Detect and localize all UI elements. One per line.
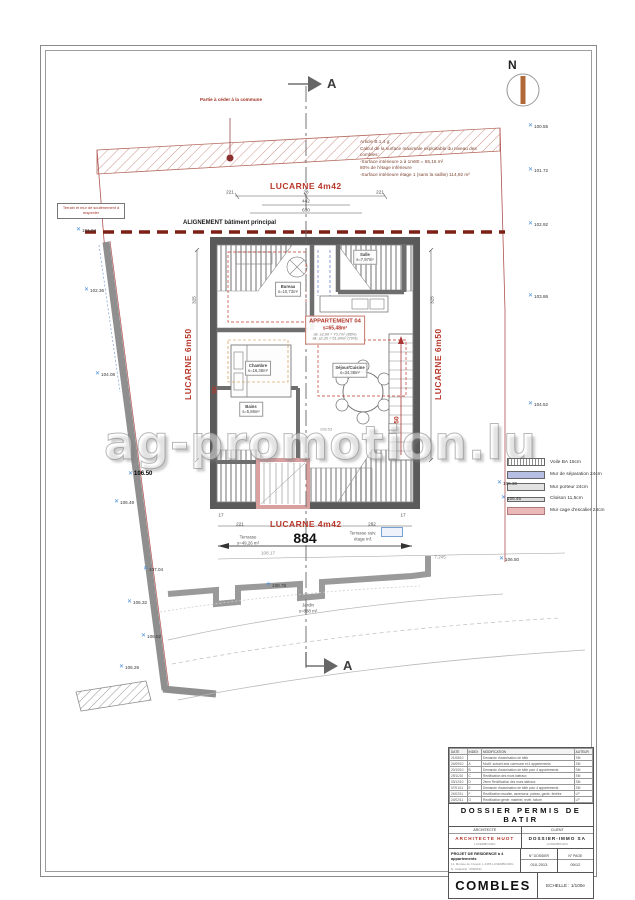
elevation-marker: ✕106.50 [499, 556, 519, 562]
dimension-text: 630 [302, 208, 310, 213]
survey-cross-icon: ✕ [497, 480, 502, 486]
article-note-line: -Surface intérieure étage 1 (sans la sai… [360, 172, 502, 179]
dimension-text: 221 [226, 190, 234, 195]
page-number-cell: N° PAGE09/12 [558, 849, 593, 872]
revision-cell: LP [574, 797, 592, 803]
survey-cross-icon: ✕ [95, 371, 100, 377]
legend-item: Voile BA 15cm [507, 458, 605, 466]
elevation-marker: ✕102.36 [84, 287, 104, 293]
watermark: ag-promotion.lu [104, 416, 537, 470]
scale-label: ECHELLE : 1/100e [538, 883, 593, 888]
legend-item: Mur de séparation 24cm [507, 471, 605, 479]
north-label: N [508, 58, 517, 72]
survey-star-icon: ✳ [266, 582, 271, 588]
legend-label: Voile BA 15cm [550, 460, 581, 465]
survey-cross-icon: ✕ [528, 293, 533, 299]
drawing-sheet: ag-promotion.lu N A A Partie à céder à l… [0, 0, 635, 900]
legend-item: Cloison 11,5cm [507, 496, 605, 503]
dimension-text: 7.245 [434, 555, 446, 560]
survey-cross-icon: ✕ [499, 556, 504, 562]
elevation-marker: ✕104.08 [95, 371, 115, 377]
dimension-text: 442 [302, 199, 310, 204]
legend-label: Mur de séparation 24cm [550, 472, 602, 477]
client-cell: CLIENT DOSSIER-IMMO SA LUXEMBOURG [522, 827, 594, 848]
legend-label: Mur porteur 24cm [550, 485, 588, 490]
alignment-label: ALIGNEMENT bâtiment principal [183, 220, 276, 226]
revision-table: DATEINDEXMODIFICATIONAUTEUR21/08/10Deman… [449, 748, 593, 803]
legend-swatch-hatch [507, 458, 545, 466]
terrasse-right-label: Terrasse suiv.étage inf. [350, 531, 377, 542]
fifty-marker-right: 50 [394, 416, 401, 423]
room-label-bains: Bainss=5,86m² [239, 402, 263, 417]
survey-cross-icon: ✕ [528, 123, 533, 129]
elevation-marker: ✕102.92 [528, 221, 548, 227]
elevation-marker: ✕106.49 [114, 499, 134, 505]
elevation-marker: ✕107.04 [143, 566, 163, 572]
lucarne-left-label: LUCARNE 6m50 [183, 328, 193, 400]
dimension-text: 325 [192, 296, 197, 304]
title-block: DATEINDEXMODIFICATIONAUTEUR21/08/10Deman… [448, 747, 594, 899]
revision-cell: 24/02/11 [450, 797, 468, 803]
article-note: Article B.1.4 g:Calcul de la surface max… [360, 139, 502, 178]
legend-item: Mur cage d'escalier 24cm [507, 507, 605, 515]
elevation-marker: ✕106.50 [128, 471, 152, 477]
elevation-marker: ✕106.30 [497, 480, 517, 486]
dimension-text: 17 [218, 513, 223, 518]
legend: Voile BA 15cmMur de séparation 24cmMur p… [507, 458, 605, 519]
lucarne-bottom-label: LUCARNE 4m42 [270, 519, 342, 529]
lucarne-right-label: LUCARNE 6m50 [433, 328, 443, 400]
apartment-label: APPARTEMENT 04 s=65,48m² alt. ≥2,00 = 70… [305, 316, 365, 345]
north-arrow [507, 74, 539, 106]
room-label-s-jour-cuisine: Séjour/Cuisines=34,38m² [332, 363, 367, 378]
dossier-number-cell: N° DOSSIER010-2013 [521, 849, 557, 872]
article-note-line: combles: [360, 152, 502, 159]
elevation-marker: ✳108.78 [266, 582, 286, 588]
dimension-text: 108.17 [261, 551, 275, 556]
survey-cross-icon: ✕ [76, 227, 81, 233]
titleblock-title: DOSSIER PERMIS DE BATIR [449, 803, 593, 827]
dimension-text: 17 [400, 513, 405, 518]
architect-name: ARCHITECTE HUOT [449, 836, 521, 841]
terrasse-left-label: Terrasses=49,26 m² [237, 535, 259, 546]
section-letter-top: A [327, 76, 336, 91]
survey-cross-icon: ✕ [128, 471, 133, 477]
elevation-marker: ✕101.72 [528, 167, 548, 173]
article-note-line: Article B.1.4 g: [360, 139, 502, 146]
survey-cross-icon: ✕ [528, 221, 533, 227]
room-label-chambre: Chambres=16,38m² [245, 361, 271, 376]
article-note-line: Calcul de la surface maximale exploitabl… [360, 146, 502, 153]
jardin-label: Jardins=888 m² [299, 603, 317, 614]
survey-cross-icon: ✕ [528, 401, 533, 407]
elevation-marker: ✕104.52 [528, 401, 548, 407]
legend-swatch-blue [507, 471, 545, 479]
revision-cell: G [467, 797, 481, 803]
retaining-wall-note: Terrain et mur de soutènement à respecte… [57, 203, 125, 219]
survey-cross-icon: ✕ [114, 499, 119, 505]
legend-item: Mur porteur 24cm [507, 483, 605, 491]
fifty-marker-left: 50 [212, 386, 219, 393]
dimension-text: 884 [293, 530, 316, 546]
legend-swatch-pink [507, 507, 545, 515]
dimension-text: 262 [368, 522, 376, 527]
legend-label: Mur cage d'escalier 24cm [550, 508, 605, 513]
terrace-level: 108.53 [320, 427, 332, 432]
survey-cross-icon: ✕ [528, 167, 533, 173]
elevation-marker: ✕106.52 [141, 633, 161, 639]
site-linework [76, 118, 585, 711]
elevation-marker: ✕106.26 [119, 664, 139, 670]
survey-cross-icon: ✕ [119, 664, 124, 670]
cession-note: Partie à céder à la commune [196, 97, 266, 103]
client-name: DOSSIER-IMMO SA [522, 836, 594, 841]
survey-cross-icon: ✕ [127, 599, 132, 605]
elevation-marker: ✕101.04 [76, 227, 96, 233]
revision-row: 24/02/11GRectification génér. matériel, … [450, 797, 593, 803]
sheet-name: COMBLES [449, 873, 538, 898]
survey-cross-icon: ✕ [143, 566, 148, 572]
dimension-text: 221 [376, 190, 384, 195]
architect-cell: ARCHITECTE ARCHITECTE HUOT LUXEMBOURG [449, 827, 522, 848]
elevation-marker: ✕100.55 [528, 123, 548, 129]
dimension-text: 325 [430, 296, 435, 304]
survey-cross-icon: ✕ [141, 633, 146, 639]
survey-cross-icon: ✕ [501, 495, 506, 501]
article-note-line: -Surface intérieure ≥ à 1m80 = 65,16 m² [360, 159, 502, 166]
section-letter-bottom: A [343, 658, 352, 673]
room-label-bureau: Bureaus=10,73m² [275, 282, 301, 297]
elevation-marker: ✕106.46 [501, 495, 521, 501]
project-cell: PROJET DE RESIDENCE à 4 appartements 11,… [449, 849, 521, 872]
room-label-salle: Salles=7,97m² [353, 250, 377, 265]
legend-label: Cloison 11,5cm [550, 496, 583, 501]
note-box [381, 527, 403, 537]
elevation-marker: ✕103.86 [528, 293, 548, 299]
dimension-text: 28 [303, 190, 308, 195]
dimension-text: 221 [236, 522, 244, 527]
revision-cell: Rectification génér. matériel, revêt. to… [482, 797, 575, 803]
article-note-line: 80% de l'étage inférieure [360, 165, 502, 172]
survey-cross-icon: ✕ [84, 287, 89, 293]
elevation-marker: ✕106.32 [127, 599, 147, 605]
